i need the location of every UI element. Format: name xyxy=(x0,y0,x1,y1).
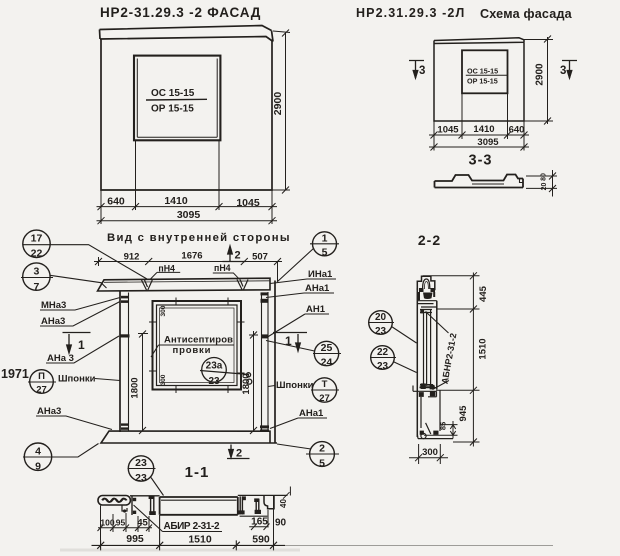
svg-text:3095: 3095 xyxy=(177,209,201,221)
svg-text:АНа1: АНа1 xyxy=(305,283,330,294)
svg-text:23: 23 xyxy=(377,361,389,372)
svg-text:23: 23 xyxy=(135,457,147,469)
svg-text:995: 995 xyxy=(126,533,144,545)
svg-text:ИНа1: ИНа1 xyxy=(308,269,333,280)
svg-text:4: 4 xyxy=(35,446,41,458)
svg-text:27: 27 xyxy=(36,385,47,396)
svg-text:5: 5 xyxy=(322,246,328,258)
svg-text:2: 2 xyxy=(236,448,242,460)
svg-text:1: 1 xyxy=(322,232,328,244)
svg-text:АНа 3: АНа 3 xyxy=(47,353,74,364)
svg-text:912: 912 xyxy=(124,252,140,263)
svg-text:23: 23 xyxy=(208,376,220,387)
svg-text:3: 3 xyxy=(560,65,566,77)
svg-text:АНа3: АНа3 xyxy=(37,406,61,417)
svg-text:17: 17 xyxy=(31,233,43,245)
svg-text:1676: 1676 xyxy=(181,251,202,262)
svg-text:НР2.31.29.3 -2Л: НР2.31.29.3 -2Л xyxy=(356,6,465,20)
svg-text:590: 590 xyxy=(252,534,270,546)
svg-text:640: 640 xyxy=(107,196,125,208)
svg-text:23: 23 xyxy=(135,472,147,484)
svg-text:пН4: пН4 xyxy=(214,263,231,273)
svg-text:АБИР 2-31-2: АБИР 2-31-2 xyxy=(164,521,220,532)
svg-text:1510: 1510 xyxy=(478,338,489,359)
svg-text:24: 24 xyxy=(321,357,333,369)
svg-text:2-2: 2-2 xyxy=(418,232,441,248)
svg-text:3095: 3095 xyxy=(477,137,499,148)
svg-text:ОР 15-15: ОР 15-15 xyxy=(467,77,498,86)
svg-text:3: 3 xyxy=(419,65,425,77)
svg-text:1: 1 xyxy=(78,338,85,352)
svg-text:1045: 1045 xyxy=(236,197,260,209)
svg-text:1800: 1800 xyxy=(130,377,141,398)
svg-text:300: 300 xyxy=(160,305,167,316)
svg-text:АН1: АН1 xyxy=(306,304,326,315)
svg-text:1-1: 1-1 xyxy=(185,464,210,481)
svg-text:25: 25 xyxy=(321,342,333,354)
svg-text:ОС 15-15: ОС 15-15 xyxy=(151,88,195,99)
svg-text:Т: Т xyxy=(322,379,328,390)
svg-text:3: 3 xyxy=(33,265,39,277)
svg-text:300: 300 xyxy=(422,447,438,458)
svg-text:445: 445 xyxy=(478,285,489,302)
svg-text:П: П xyxy=(38,371,45,382)
svg-text:1510: 1510 xyxy=(188,534,212,546)
svg-text:9: 9 xyxy=(35,461,41,473)
svg-text:Вид с внутренней стороны: Вид с внутренней стороны xyxy=(107,232,291,244)
svg-text:20: 20 xyxy=(375,312,387,323)
svg-text:23: 23 xyxy=(375,326,387,337)
svg-text:5: 5 xyxy=(319,458,325,470)
svg-text:165: 165 xyxy=(251,517,268,528)
svg-text:95: 95 xyxy=(116,518,126,528)
svg-text:2900: 2900 xyxy=(535,63,546,86)
svg-text:1800: 1800 xyxy=(241,373,252,394)
svg-text:40: 40 xyxy=(279,499,288,508)
svg-text:Антисептиров: Антисептиров xyxy=(164,335,233,346)
svg-text:Шпонки: Шпонки xyxy=(276,380,314,391)
svg-text:НР2-31.29.3 -2 ФАСАД: НР2-31.29.3 -2 ФАСАД xyxy=(100,5,261,20)
svg-text:85: 85 xyxy=(439,422,448,430)
svg-text:ОС 15-15: ОС 15-15 xyxy=(467,67,498,76)
svg-text:3-3: 3-3 xyxy=(469,153,493,169)
svg-text:2900: 2900 xyxy=(272,92,284,116)
svg-text:1045: 1045 xyxy=(437,125,459,136)
svg-text:507: 507 xyxy=(252,252,268,263)
svg-text:ОР 15-15: ОР 15-15 xyxy=(151,104,194,115)
svg-text:100: 100 xyxy=(100,518,114,528)
svg-text:1971: 1971 xyxy=(1,367,29,381)
svg-text:2: 2 xyxy=(235,250,241,262)
svg-text:1410: 1410 xyxy=(473,124,494,135)
svg-text:80: 80 xyxy=(541,173,548,181)
svg-text:20: 20 xyxy=(541,183,548,191)
svg-text:Шпонки: Шпонки xyxy=(58,374,96,385)
svg-text:22: 22 xyxy=(31,248,43,260)
svg-text:27: 27 xyxy=(319,393,330,404)
svg-text:45: 45 xyxy=(137,518,148,529)
svg-text:640: 640 xyxy=(509,125,525,136)
svg-text:2: 2 xyxy=(319,443,325,455)
svg-text:МНа3: МНа3 xyxy=(41,300,66,311)
svg-text:22: 22 xyxy=(377,347,389,358)
svg-text:АНа1: АНа1 xyxy=(299,408,324,419)
svg-text:провки: провки xyxy=(173,345,211,356)
svg-text:90: 90 xyxy=(275,518,287,529)
svg-text:Схема фасада: Схема фасада xyxy=(480,7,573,21)
svg-text:945: 945 xyxy=(458,405,469,422)
svg-text:23а: 23а xyxy=(206,361,223,372)
svg-text:АНа3: АНа3 xyxy=(41,316,65,327)
svg-text:1410: 1410 xyxy=(164,195,188,207)
svg-text:300: 300 xyxy=(160,374,167,385)
svg-text:7: 7 xyxy=(33,281,39,293)
